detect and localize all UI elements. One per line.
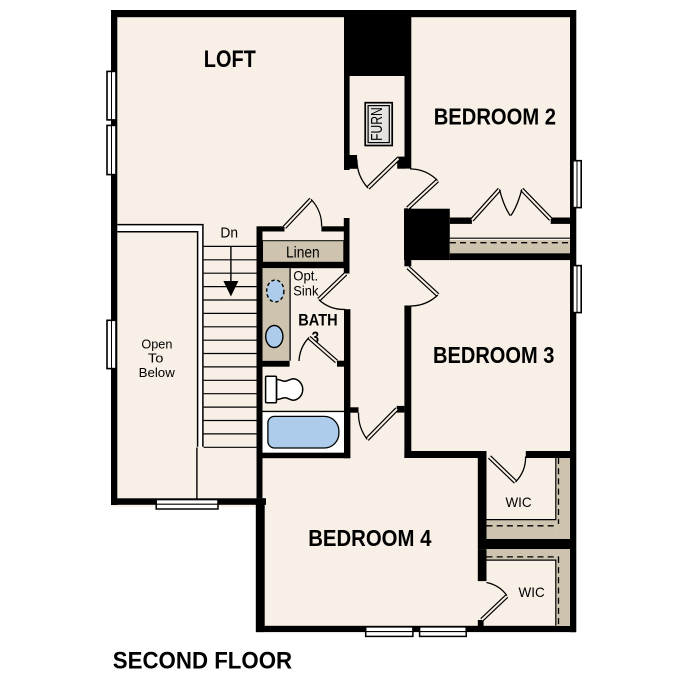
svg-text:BEDROOM 2: BEDROOM 2 <box>434 103 556 129</box>
svg-text:Dn: Dn <box>220 225 238 242</box>
svg-text:Sink: Sink <box>293 282 319 298</box>
svg-text:BEDROOM 4: BEDROOM 4 <box>308 525 431 551</box>
svg-text:SECOND FLOOR: SECOND FLOOR <box>113 648 293 675</box>
svg-text:Open: Open <box>141 337 172 351</box>
svg-text:To: To <box>148 351 164 365</box>
svg-text:WIC: WIC <box>519 584 545 600</box>
svg-text:BATH: BATH <box>298 311 337 330</box>
svg-text:Below: Below <box>139 366 176 380</box>
svg-text:FURN: FURN <box>369 107 386 141</box>
svg-text:BEDROOM 3: BEDROOM 3 <box>433 342 554 368</box>
svg-text:Opt.: Opt. <box>293 268 318 284</box>
svg-text:LOFT: LOFT <box>204 46 256 73</box>
svg-text:WIC: WIC <box>506 494 532 510</box>
svg-text:Linen: Linen <box>286 245 320 262</box>
